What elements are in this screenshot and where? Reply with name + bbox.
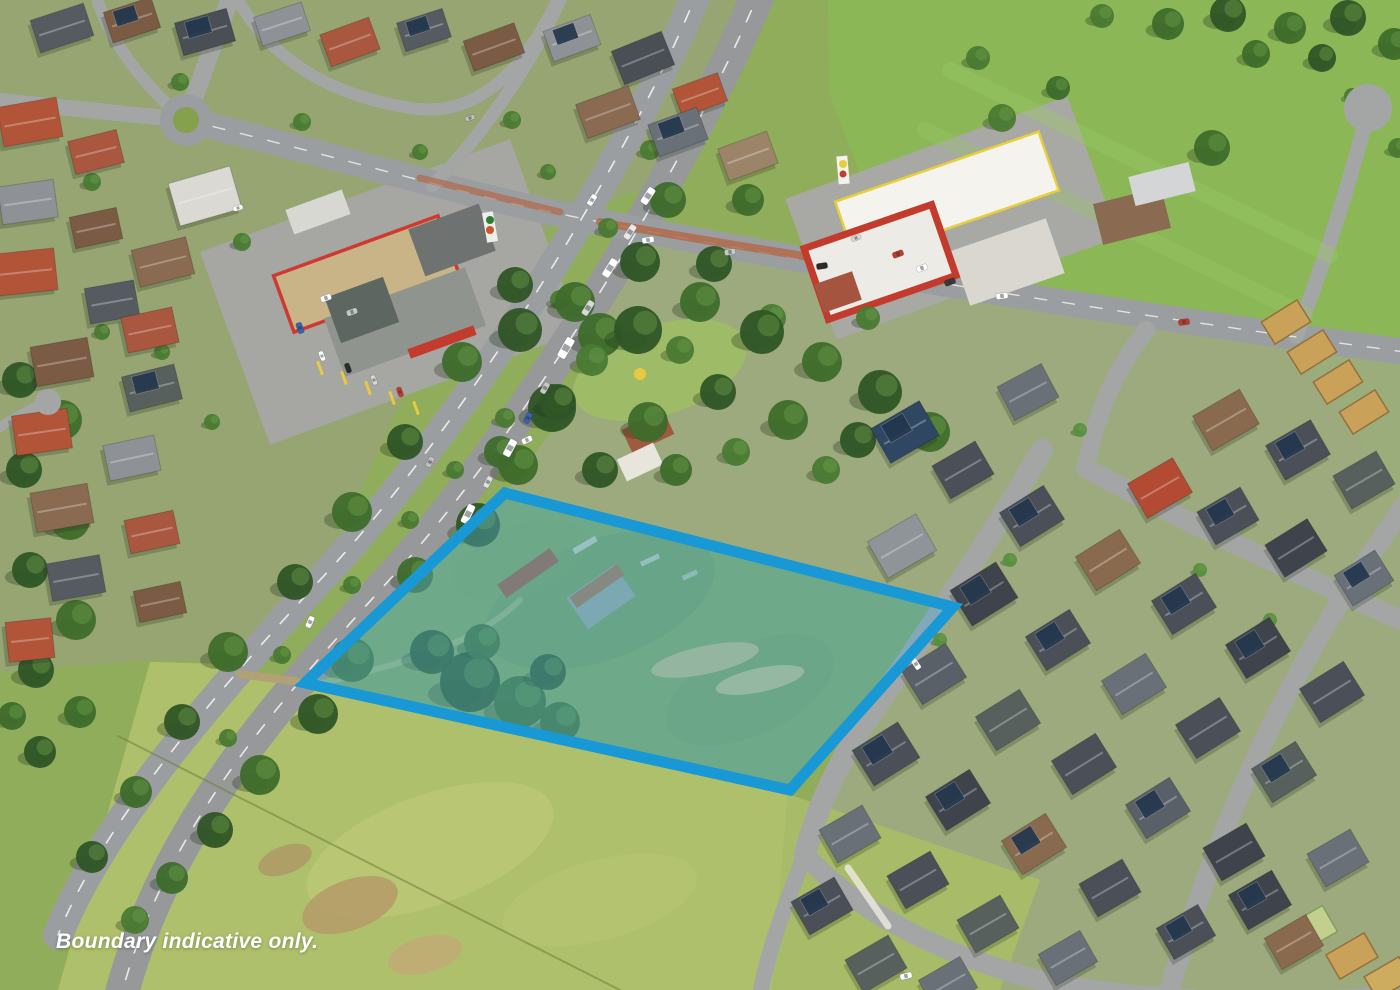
tree-highlight	[939, 634, 946, 641]
mcdonalds-arches-sign	[634, 368, 646, 380]
car	[1178, 318, 1190, 325]
tree-highlight	[1009, 554, 1016, 561]
tree-highlight	[256, 759, 276, 779]
tree-highlight	[999, 107, 1013, 121]
tree-highlight	[546, 166, 554, 174]
vehicle-glass	[646, 238, 650, 243]
tree-highlight	[677, 339, 691, 353]
house	[1, 618, 55, 667]
vehicle-glass	[820, 264, 824, 268]
cul-de-sac-bulb	[1344, 84, 1392, 132]
tree-highlight	[226, 731, 235, 740]
tree-highlight	[1319, 47, 1333, 61]
tree-highlight	[314, 698, 334, 718]
tree-highlight	[554, 388, 572, 406]
tree-highlight	[514, 449, 534, 469]
tree-highlight	[169, 865, 185, 881]
tree-highlight	[644, 406, 664, 426]
tree-highlight	[1208, 134, 1226, 152]
tree-highlight	[1199, 564, 1206, 571]
vehicle-glass	[728, 250, 732, 255]
aerial-photo: Boundary indicative only.	[0, 0, 1400, 990]
tree-highlight	[178, 75, 187, 84]
tree-highlight	[1079, 424, 1086, 431]
tree-highlight	[606, 220, 616, 230]
tree-highlight	[77, 699, 93, 715]
tree-highlight	[784, 404, 804, 424]
tree-highlight	[589, 347, 605, 363]
tree-highlight	[348, 496, 368, 516]
tree-highlight	[664, 186, 682, 204]
tree-highlight	[1056, 78, 1068, 90]
tree-highlight	[350, 578, 359, 587]
tree-highlight	[1100, 6, 1112, 18]
tree-highlight	[89, 844, 105, 860]
tree-highlight	[408, 513, 417, 522]
tree-highlight	[511, 271, 529, 289]
house	[0, 179, 59, 229]
tree-highlight	[818, 346, 838, 366]
tree-highlight	[633, 311, 657, 335]
tree-highlight	[210, 416, 218, 424]
fuel-price-board	[840, 171, 847, 178]
tree-highlight	[300, 115, 309, 124]
tree-highlight	[37, 739, 53, 755]
aerial-scene-canvas	[0, 0, 1400, 990]
tree-highlight	[90, 175, 99, 184]
tree-highlight	[280, 648, 289, 657]
tree-highlight	[976, 48, 988, 60]
house	[8, 408, 74, 460]
vehicle-glass	[1182, 320, 1186, 324]
cul-de-sac-bulb	[35, 389, 61, 415]
car	[996, 292, 1009, 300]
tree-highlight	[866, 308, 878, 320]
tree-highlight	[636, 246, 656, 266]
house	[0, 248, 58, 300]
car	[816, 262, 828, 270]
tree-highlight	[133, 779, 149, 795]
boundary-disclaimer: Boundary indicative only.	[56, 930, 318, 954]
seven-eleven-sign-green	[486, 216, 494, 224]
tree-highlight	[72, 604, 92, 624]
tree-highlight	[224, 636, 244, 656]
tree-highlight	[758, 314, 780, 336]
shell-logo	[839, 160, 847, 168]
tree-highlight	[132, 909, 146, 923]
vehicle-glass	[1000, 294, 1004, 298]
roundabout-island	[173, 107, 199, 133]
tree-highlight	[876, 374, 898, 396]
tree-highlight	[714, 378, 732, 396]
tree-highlight	[9, 705, 23, 719]
tree-highlight	[100, 326, 108, 334]
tree-highlight	[1224, 0, 1242, 18]
tree-highlight	[673, 457, 689, 473]
tree-highlight	[240, 235, 249, 244]
seven-eleven-sign-orange	[486, 226, 494, 234]
tree-highlight	[401, 428, 419, 446]
tree-highlight	[418, 146, 426, 154]
tree-highlight	[696, 286, 716, 306]
tree-highlight	[1165, 11, 1181, 27]
tree-highlight	[178, 708, 196, 726]
tree-highlight	[745, 187, 761, 203]
tree-highlight	[1344, 4, 1362, 22]
tree-highlight	[510, 113, 519, 122]
tree-highlight	[26, 556, 44, 574]
tree-highlight	[823, 459, 837, 473]
tree-highlight	[453, 463, 462, 472]
tree-highlight	[1287, 15, 1303, 31]
tree-highlight	[291, 568, 309, 586]
tree-highlight	[516, 312, 538, 334]
tree-highlight	[211, 816, 229, 834]
tree-highlight	[458, 346, 478, 366]
tree-highlight	[596, 456, 614, 474]
tree-highlight	[1253, 43, 1267, 57]
tree-highlight	[503, 410, 513, 420]
tree-highlight	[733, 441, 747, 455]
